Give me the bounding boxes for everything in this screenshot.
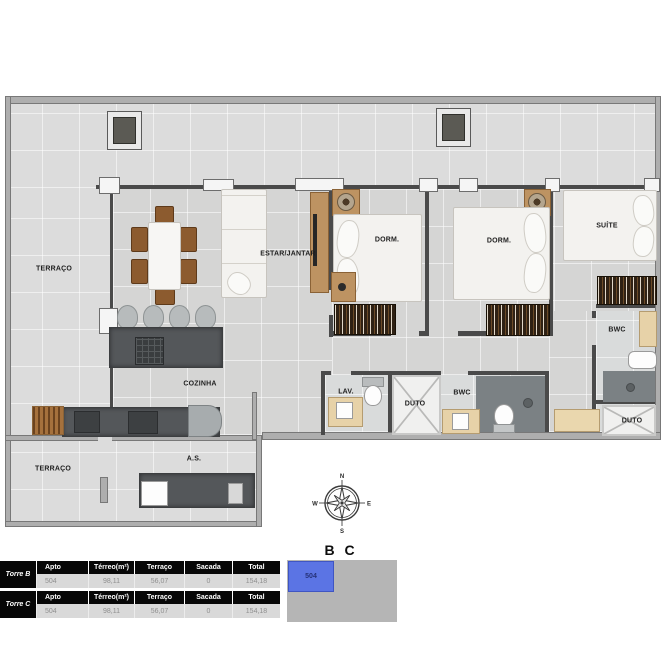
header-cell: Apto bbox=[36, 591, 88, 604]
unit-highlight: 504 bbox=[288, 561, 334, 592]
wall bbox=[592, 311, 596, 318]
header-cell: Apto bbox=[36, 561, 88, 574]
wall bbox=[425, 189, 429, 335]
table-data-row: 504 98,11 56,07 0 154,18 bbox=[36, 574, 280, 588]
window-pilaster bbox=[419, 178, 438, 192]
compass-w-label: W bbox=[312, 502, 318, 508]
kitchen-island bbox=[109, 327, 223, 368]
room-label-lav: LAV. bbox=[338, 389, 354, 396]
header-cell: Térreo(m²) bbox=[88, 591, 134, 604]
bath-mat bbox=[554, 409, 600, 432]
table-lamp bbox=[337, 193, 355, 211]
shower-drain bbox=[626, 383, 635, 392]
room-label-terraco-bottom: TERRAÇO bbox=[35, 466, 71, 473]
unit-key-block: 504 bbox=[287, 560, 397, 622]
header-cell: Total bbox=[232, 591, 280, 604]
dining-chair bbox=[131, 259, 148, 284]
bathtub bbox=[628, 351, 657, 369]
header-cell: Sacada bbox=[184, 591, 232, 604]
counter-end bbox=[188, 405, 222, 437]
room-label-terraco: TERRAÇO bbox=[36, 266, 72, 273]
dining-chair bbox=[180, 227, 197, 252]
room-label-suite: SUÍTE bbox=[596, 223, 618, 230]
floor-plan-screenshot: TERRAÇO ESTAR/JANTAR DORM. DORM. SUÍTE B… bbox=[0, 0, 665, 665]
data-cell: 154,18 bbox=[232, 574, 280, 588]
room-label-cozinha: COZINHA bbox=[183, 381, 216, 388]
header-cell: Térreo(m²) bbox=[88, 561, 134, 574]
washing-machine bbox=[141, 481, 168, 506]
cooktop bbox=[135, 337, 164, 365]
wall bbox=[100, 477, 108, 503]
window-pilaster bbox=[99, 177, 120, 194]
tower-name-cell: Torre B bbox=[0, 561, 36, 588]
decor-object bbox=[338, 283, 346, 291]
header-cell: Total bbox=[232, 561, 280, 574]
header-cell: Sacada bbox=[184, 561, 232, 574]
bar-stool bbox=[195, 305, 216, 329]
room-label-dorm-1: DORM. bbox=[375, 237, 399, 244]
wall bbox=[256, 435, 262, 527]
room-label-duto-2: DUTO bbox=[622, 418, 643, 425]
area-tables: Torre B Apto Térreo(m²) Terraço Sacada T… bbox=[0, 561, 280, 621]
sink bbox=[336, 402, 353, 419]
table-header-row: Apto Térreo(m²) Terraço Sacada Total bbox=[36, 591, 280, 604]
window-pilaster bbox=[459, 178, 478, 192]
table-torre-b: Torre B Apto Térreo(m²) Terraço Sacada T… bbox=[0, 561, 280, 588]
header-cell: Terraço bbox=[134, 591, 184, 604]
room-label-duto-1: DUTO bbox=[405, 401, 426, 408]
compass-rose: N S W E bbox=[310, 471, 374, 535]
shower-drain bbox=[523, 398, 533, 408]
wall bbox=[5, 521, 262, 527]
data-cell: 0 bbox=[184, 604, 232, 618]
structural-column bbox=[107, 111, 142, 150]
room-label-dorm-2: DORM. bbox=[487, 238, 511, 245]
kitchen-sink bbox=[128, 411, 158, 434]
dining-chair bbox=[155, 289, 175, 305]
bar-stool bbox=[169, 305, 190, 329]
room-label-bwc-social: BWC bbox=[453, 390, 470, 397]
laundry-tub bbox=[228, 483, 243, 504]
wall bbox=[5, 96, 11, 527]
wardrobe bbox=[334, 304, 396, 335]
wall bbox=[655, 96, 661, 440]
toilet-tank bbox=[493, 424, 515, 433]
tower-name-cell: Torre C bbox=[0, 591, 36, 618]
bathroom-vanity bbox=[639, 311, 657, 347]
wall bbox=[96, 185, 656, 189]
dining-chair bbox=[180, 259, 197, 284]
unit-diagram-title: B C bbox=[324, 542, 357, 558]
data-cell: 504 bbox=[36, 604, 88, 618]
terrace-left-floor bbox=[5, 188, 113, 441]
compass-s-label: S bbox=[340, 529, 344, 535]
terrace-top-floor bbox=[5, 100, 661, 188]
table-torre-c: Torre C Apto Térreo(m²) Terraço Sacada T… bbox=[0, 591, 280, 618]
wall bbox=[419, 331, 429, 336]
data-cell: 56,07 bbox=[134, 574, 184, 588]
data-cell: 504 bbox=[36, 574, 88, 588]
data-cell: 98,11 bbox=[88, 574, 134, 588]
bar-stool bbox=[143, 305, 164, 329]
wall bbox=[321, 375, 325, 435]
data-cell: 56,07 bbox=[134, 604, 184, 618]
room-label-bwc-suite: BWC bbox=[608, 327, 625, 334]
dining-chair bbox=[155, 206, 174, 223]
bar-stool bbox=[117, 305, 138, 329]
kitchen-sink bbox=[74, 411, 100, 433]
wall bbox=[545, 375, 549, 432]
wall bbox=[5, 96, 661, 104]
header-cell: Terraço bbox=[134, 561, 184, 574]
data-cell: 0 bbox=[184, 574, 232, 588]
structural-column bbox=[436, 108, 471, 147]
toilet bbox=[364, 385, 382, 406]
compass-n-label: N bbox=[340, 474, 344, 480]
wardrobe bbox=[597, 276, 657, 305]
table-data-row: 504 98,11 56,07 0 154,18 bbox=[36, 604, 280, 618]
grill bbox=[32, 406, 64, 435]
wall bbox=[468, 371, 549, 375]
compass-e-label: E bbox=[367, 502, 371, 508]
dining-chair bbox=[131, 227, 148, 252]
room-label-estar-jantar: ESTAR/JANTAR bbox=[260, 251, 315, 258]
sink bbox=[452, 413, 469, 430]
wall bbox=[252, 392, 257, 440]
room-label-area-servico: A.S. bbox=[187, 456, 201, 463]
table-header-row: Apto Térreo(m²) Terraço Sacada Total bbox=[36, 561, 280, 574]
wardrobe bbox=[486, 304, 550, 336]
data-cell: 98,11 bbox=[88, 604, 134, 618]
dining-table bbox=[148, 222, 181, 290]
data-cell: 154,18 bbox=[232, 604, 280, 618]
tv bbox=[313, 214, 317, 266]
